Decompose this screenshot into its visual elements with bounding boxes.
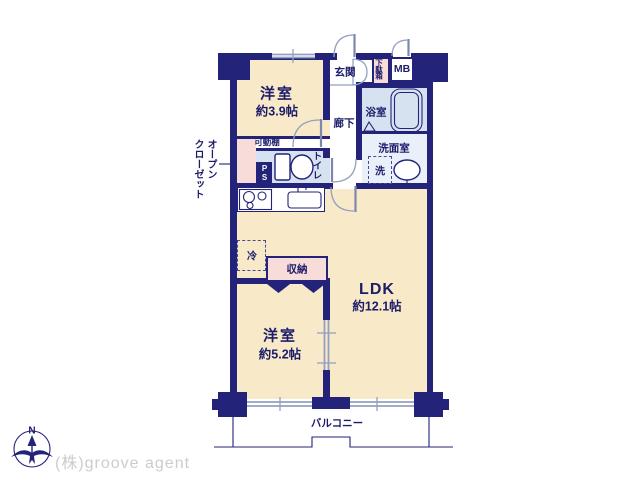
kitchen-counter xyxy=(237,187,325,212)
wall-partition-upper xyxy=(323,284,330,320)
washroom-label: 洗面室 xyxy=(378,141,410,156)
movable-shelf-label: 可動棚 xyxy=(254,136,280,148)
pillar-bottom-left xyxy=(218,392,247,417)
pillar-bottom-right xyxy=(414,392,443,417)
wall-entrance-bottom xyxy=(356,82,433,88)
window-top-gap xyxy=(272,53,315,58)
meter-box-label: MB xyxy=(394,63,410,75)
toilet-label: トイレ xyxy=(310,151,320,180)
wall-left xyxy=(230,60,237,400)
company-name: (株)groove agent xyxy=(55,449,190,473)
wall-right xyxy=(427,82,433,400)
front-door-gap xyxy=(337,53,356,60)
wall-bedroom1-bottom xyxy=(237,136,330,139)
wall-washroom-left xyxy=(356,85,362,160)
balcony-label: バルコニー xyxy=(311,416,363,431)
pipe-shaft-label: PS xyxy=(260,164,268,182)
shoe-box-label: 下駄箱 xyxy=(375,59,383,79)
pillar-top-right xyxy=(414,53,448,82)
bedroom2-size: 約5.2帖 xyxy=(259,344,301,363)
compass-north-label: N xyxy=(28,426,35,437)
washer-label: 洗 xyxy=(375,163,385,178)
wall-bottom-center xyxy=(312,397,350,409)
ldk-size: 約12.1帖 xyxy=(352,296,401,315)
pillar-bottom-right-tab xyxy=(443,399,449,410)
bathroom-label: 浴室 xyxy=(366,105,387,120)
bedroom2-name: 洋室 xyxy=(263,325,297,346)
storage-label: 収納 xyxy=(287,262,308,277)
hallway-label: 廊下 xyxy=(334,116,355,131)
floorplan: 洋室 約3.9帖 玄関 下駄箱 MB 廊下 浴室 洗面室 洗 可動棚 トイレ P… xyxy=(0,0,640,480)
fridge-label: 冷 xyxy=(247,248,257,263)
pillar-bottom-left-tab xyxy=(212,399,218,410)
open-closet-label-line1: オープン xyxy=(205,139,215,179)
wall-corridor-upper xyxy=(323,60,330,120)
bedroom1-size: 約3.9帖 xyxy=(256,101,298,120)
open-closet-label-line2: クローゼット xyxy=(192,139,202,199)
open-closet-floor xyxy=(237,139,256,183)
wall-bath-washroom xyxy=(362,131,427,134)
entrance-label: 玄関 xyxy=(335,65,356,80)
